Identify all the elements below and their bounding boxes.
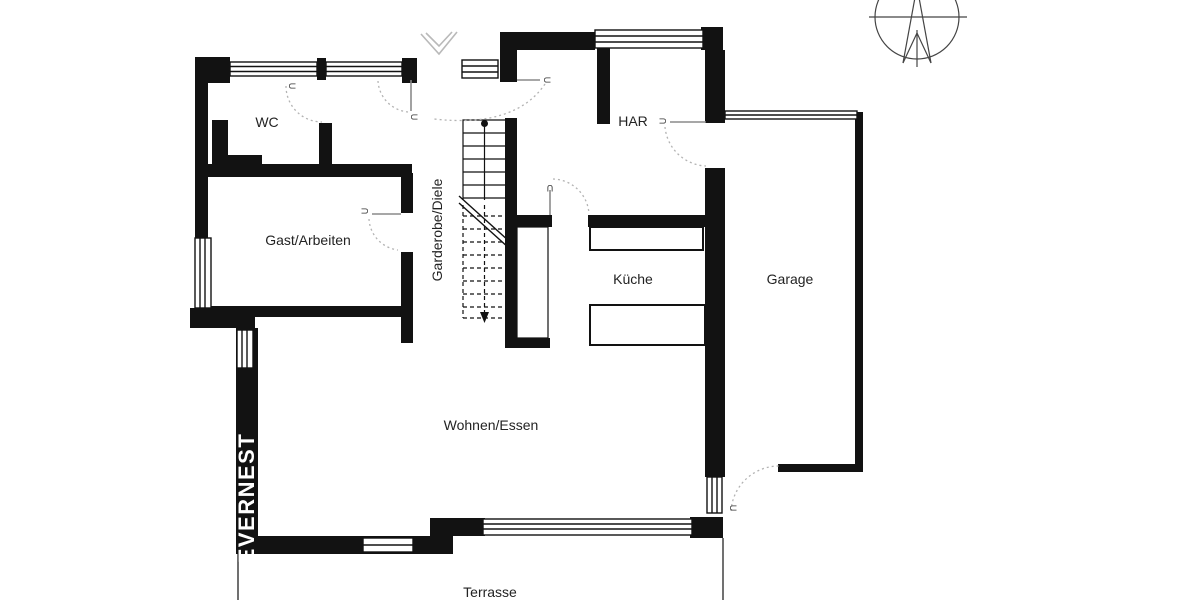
window	[595, 30, 703, 48]
room-label-gast: Gast/Arbeiten	[265, 232, 351, 248]
wall	[778, 464, 863, 472]
door-hinge-symbol: U	[360, 208, 370, 215]
garage-door-line	[725, 111, 857, 119]
window	[363, 538, 413, 552]
kitchen-counter	[590, 227, 703, 250]
wall	[195, 57, 208, 238]
door-hinge-symbol: U	[409, 114, 419, 121]
door-hinge-symbol: U	[728, 505, 738, 512]
door-arc-har	[665, 127, 706, 166]
window	[195, 238, 211, 308]
door-arc-wc	[286, 86, 322, 122]
door-arc-gast	[369, 219, 398, 250]
door-arc-entry	[434, 84, 545, 121]
window	[230, 62, 317, 76]
room-label-har: HAR	[618, 113, 648, 129]
wall	[597, 48, 610, 124]
staircase	[459, 120, 510, 323]
room-label-garderobe: Garderobe/Diele	[429, 178, 445, 281]
wall	[588, 215, 705, 227]
wall	[500, 32, 595, 50]
watermark-evernest: EVERNEST	[234, 433, 259, 564]
floor-plan-canvas: U U U U U U U WC Gast/Arbeiten Garderobe…	[0, 0, 1200, 600]
wall	[319, 123, 332, 168]
wall	[705, 50, 725, 123]
door-hinge-symbol: U	[287, 83, 297, 90]
door-hinge-symbol: U	[547, 183, 554, 193]
wall	[517, 215, 552, 227]
wall	[317, 58, 326, 80]
door-hinge-symbol: U	[542, 77, 552, 84]
window	[237, 330, 253, 368]
room-label-kueche: Küche	[613, 271, 653, 287]
door-panel-window	[707, 477, 722, 513]
wall	[401, 252, 413, 343]
wall	[690, 517, 723, 538]
door-hinge-symbol: U	[658, 118, 668, 125]
door-arc-hall	[378, 81, 408, 112]
wall	[705, 168, 725, 477]
compass-icon	[869, 0, 967, 67]
entrance-chevron-icon	[421, 32, 457, 54]
wall	[430, 518, 453, 554]
room-label-terrasse: Terrasse	[463, 584, 517, 600]
wall	[450, 518, 485, 536]
room-label-wohnen: Wohnen/Essen	[444, 417, 539, 433]
wall	[701, 27, 723, 50]
room-label-garage: Garage	[767, 271, 814, 287]
wall	[206, 306, 412, 317]
floor-plan: U U U U U U U WC Gast/Arbeiten Garderobe…	[0, 0, 1200, 600]
stair-start-dot	[481, 120, 488, 127]
wall	[505, 118, 517, 348]
room-label-wc: WC	[255, 114, 278, 130]
window	[462, 60, 498, 78]
wall	[855, 112, 863, 472]
wall	[206, 164, 412, 177]
stair-niche	[517, 227, 548, 338]
wall	[505, 338, 550, 348]
wall	[401, 173, 413, 213]
window	[483, 519, 692, 535]
wall	[402, 58, 417, 83]
kitchen-counter	[590, 305, 705, 345]
door-arc-kitchen	[553, 179, 589, 214]
window	[326, 62, 402, 76]
